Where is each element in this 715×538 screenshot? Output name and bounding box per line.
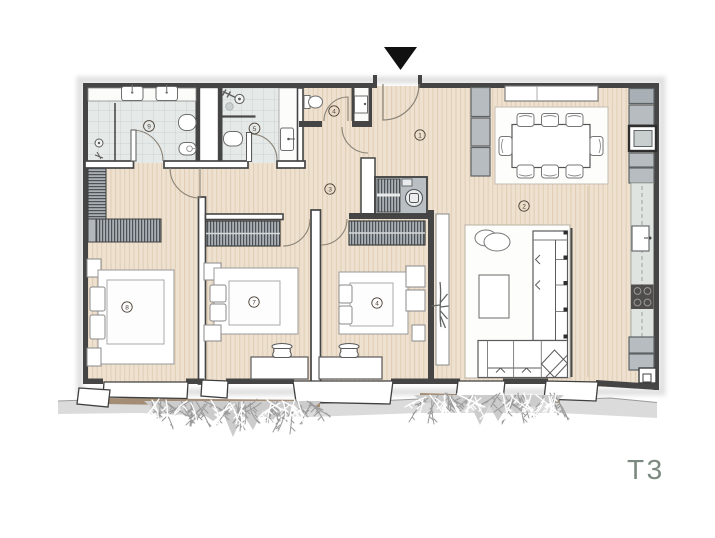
svg-text:1: 1 [418,133,422,140]
svg-text:7: 7 [252,300,256,307]
svg-text:3: 3 [328,187,332,194]
svg-text:2: 2 [522,204,526,211]
svg-text:5: 5 [253,126,257,133]
svg-text:T3: T3 [627,454,665,485]
svg-text:4: 4 [375,301,379,308]
svg-text:8: 8 [125,305,129,312]
svg-text:4: 4 [332,109,336,116]
svg-text:9: 9 [147,124,151,131]
